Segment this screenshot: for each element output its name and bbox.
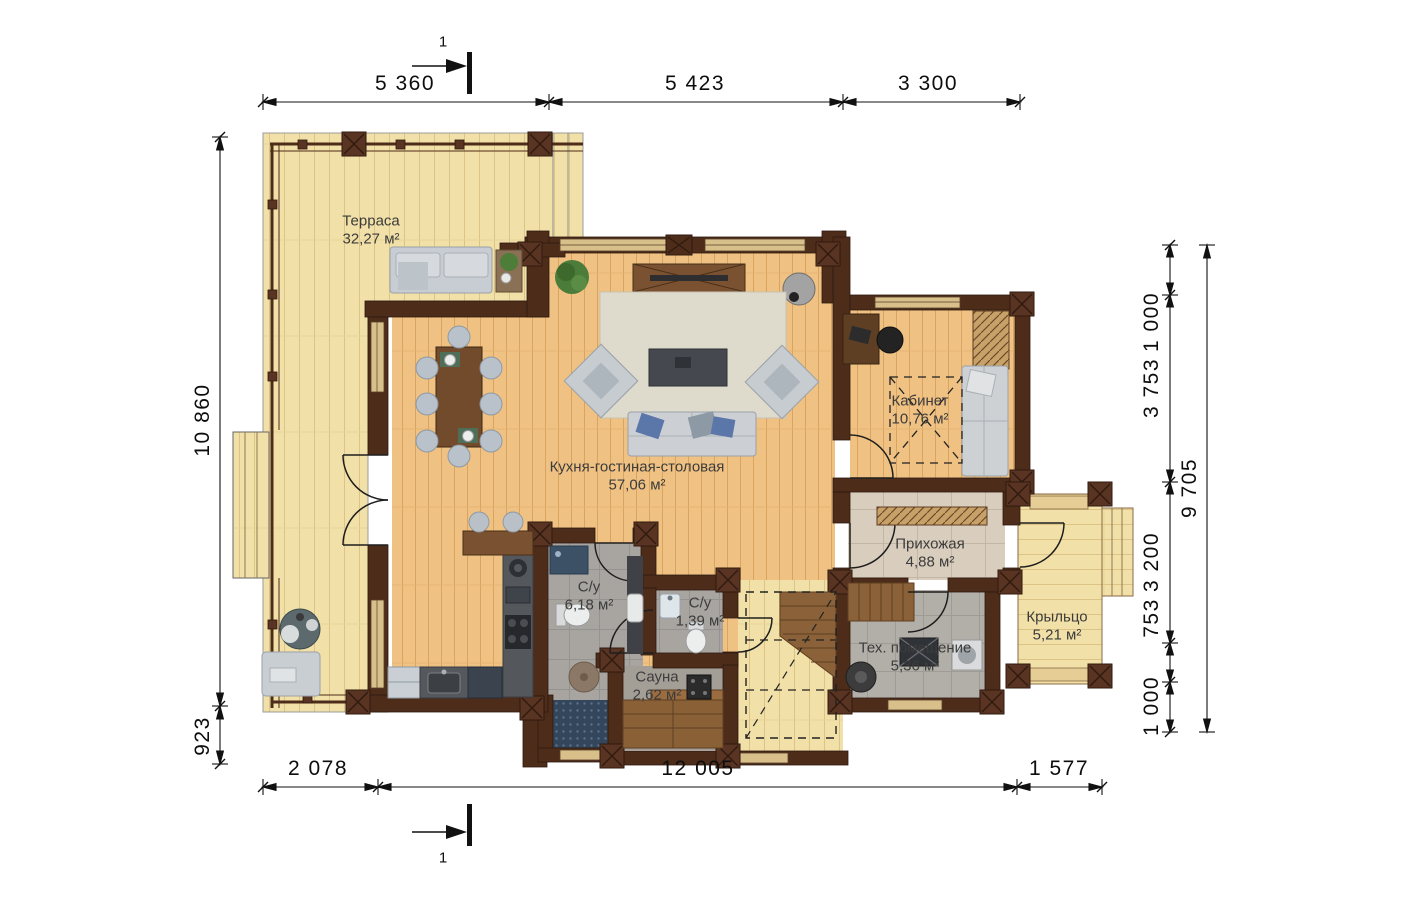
kitchen-cabinet <box>468 667 502 698</box>
room-area: 57,06 м² <box>550 477 725 495</box>
room-label-kitchen-living: Кухня-гостиная-столовая 57,06 м² <box>550 459 725 496</box>
room-label-porch: Крыльцо 5,21 м² <box>1026 609 1087 646</box>
shower <box>550 546 588 574</box>
terrace-side-table <box>496 250 522 292</box>
room-name: Прихожая <box>895 536 965 554</box>
room-area: 1,39 м² <box>676 613 725 631</box>
dim-left-2: 923 <box>191 716 215 756</box>
window-west-1 <box>371 322 384 392</box>
terrace-side-steps <box>233 432 269 578</box>
terrace-armchair <box>262 652 320 696</box>
room-area: 5,36 м² <box>859 658 972 676</box>
room-name: Тех. помещение <box>859 640 972 658</box>
floor-plan: Терраса 32,27 м² Кухня-гостиная-столовая… <box>0 0 1407 898</box>
hall-closet <box>877 507 987 525</box>
section-label-top: 1 <box>439 34 447 51</box>
room-area: 2,62 м² <box>633 687 682 705</box>
section-cut-line-bottom <box>467 804 472 846</box>
kitchen-sink <box>420 667 468 698</box>
dim-right-total: 9 705 <box>1178 458 1202 518</box>
tv-console <box>633 264 745 292</box>
dim-right-2: 3 753 <box>1140 358 1164 418</box>
sauna-stove <box>687 675 711 699</box>
dim-top-2: 5 423 <box>665 72 725 96</box>
window-west-2 <box>371 600 384 688</box>
dim-right-5: 1 000 <box>1140 676 1164 736</box>
office-desk <box>843 314 879 364</box>
room-label-hallway: Прихожая 4,88 м² <box>895 536 965 573</box>
section-arrow-top <box>446 59 467 73</box>
shower-floor <box>553 700 612 750</box>
room-area: 4,88 м² <box>895 554 965 572</box>
office-sofa <box>962 366 1008 476</box>
section-label-bottom: 1 <box>439 850 447 867</box>
room-label-utility: Тех. помещение 5,36 м² <box>859 640 972 677</box>
room-label-bathroom: С/у 6,18 м² <box>565 579 614 616</box>
dim-left-1: 10 860 <box>191 383 215 456</box>
fireplace-stove <box>783 273 815 305</box>
window-office-top <box>875 297 960 308</box>
floor-drain <box>569 662 599 692</box>
room-area: 32,27 м² <box>342 231 400 249</box>
dim-right-4: 753 <box>1140 598 1164 638</box>
room-area: 5,21 м² <box>1026 627 1087 645</box>
room-name: Терраса <box>342 213 400 231</box>
room-name: Крыльцо <box>1026 609 1087 627</box>
office-shelf <box>973 311 1009 369</box>
room-label-sauna: Сауна 2,62 м² <box>633 669 682 706</box>
office-chair <box>877 327 903 353</box>
dining-table <box>436 347 482 447</box>
room-label-wc: С/у 1,39 м² <box>676 595 725 632</box>
terrace-round-table <box>280 609 320 649</box>
room-name: Кабинет <box>891 393 948 411</box>
room-label-office: Кабинет 10,76 м² <box>891 393 948 430</box>
section-cut-line-top <box>467 52 472 94</box>
dim-bottom-2: 12 005 <box>661 757 734 781</box>
porch-side-steps <box>1102 508 1133 596</box>
dim-bottom-1: 2 078 <box>288 757 348 781</box>
kitchen-counter <box>503 537 533 697</box>
window-shower <box>560 750 602 760</box>
dim-bottom-3: 1 577 <box>1029 757 1089 781</box>
dim-top-1: 5 360 <box>375 72 435 96</box>
section-arrow-bottom <box>446 825 467 839</box>
room-area: 10,76 м² <box>891 411 948 429</box>
porch-step-top <box>1030 496 1088 509</box>
room-name: С/у <box>676 595 725 613</box>
room-name: Сауна <box>633 669 682 687</box>
room-name: С/у <box>565 579 614 597</box>
plant <box>555 260 589 294</box>
sofa <box>628 411 756 456</box>
room-label-terrace: Терраса 32,27 м² <box>342 213 400 250</box>
coffee-table <box>649 349 727 386</box>
room-area: 6,18 м² <box>565 597 614 615</box>
dim-top-3: 3 300 <box>898 72 958 96</box>
porch-step-bottom <box>1030 668 1088 681</box>
window-utility <box>888 700 942 710</box>
window-stairs <box>740 753 788 763</box>
dim-right-3: 3 200 <box>1140 532 1164 592</box>
bath-vanity <box>627 556 643 654</box>
terrace-sofa <box>390 247 492 293</box>
room-name: Кухня-гостиная-столовая <box>550 459 725 477</box>
dim-right-1: 1 000 <box>1140 292 1164 352</box>
fridge <box>388 667 420 698</box>
